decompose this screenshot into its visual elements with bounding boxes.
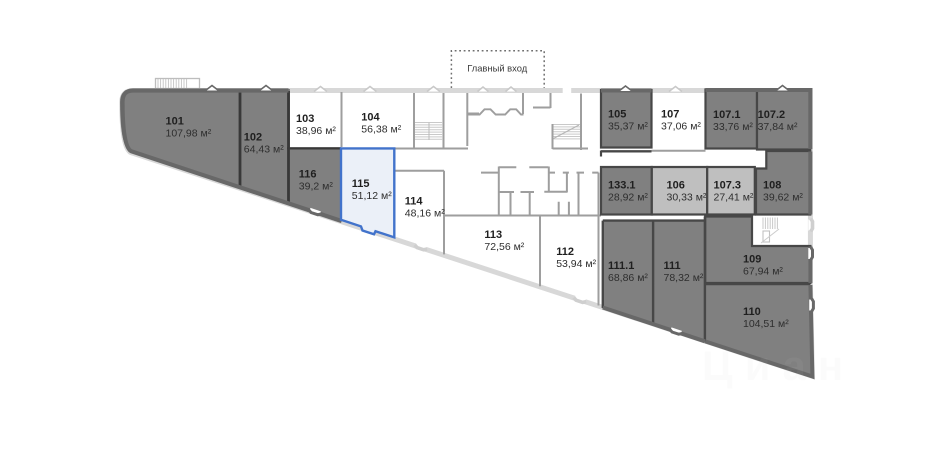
svg-text:116: 116 [299, 168, 317, 180]
svg-text:64,43 м²: 64,43 м² [244, 144, 284, 156]
svg-text:104,51 м²: 104,51 м² [743, 318, 789, 330]
svg-text:106: 106 [667, 179, 685, 191]
svg-text:104: 104 [361, 112, 380, 124]
svg-text:107,98 м²: 107,98 м² [166, 128, 212, 140]
svg-text:72,56 м²: 72,56 м² [484, 241, 524, 253]
svg-text:107.2: 107.2 [758, 109, 786, 121]
svg-text:108: 108 [763, 179, 781, 191]
svg-text:115: 115 [352, 178, 370, 190]
svg-text:112: 112 [556, 246, 574, 258]
svg-text:30,33 м²: 30,33 м² [667, 191, 707, 203]
svg-text:114: 114 [405, 196, 424, 208]
svg-text:53,94 м²: 53,94 м² [556, 258, 596, 270]
svg-text:67,94 м²: 67,94 м² [743, 266, 783, 278]
svg-text:39,2 м²: 39,2 м² [299, 180, 334, 192]
svg-text:110: 110 [743, 306, 761, 318]
svg-text:Циан: Циан [702, 342, 855, 389]
svg-text:33,76 м²: 33,76 м² [713, 121, 753, 133]
svg-text:37,06 м²: 37,06 м² [661, 121, 701, 133]
svg-text:101: 101 [166, 116, 184, 128]
svg-text:105: 105 [608, 109, 626, 121]
svg-text:27,41 м²: 27,41 м² [714, 191, 754, 203]
svg-text:111.1: 111.1 [608, 260, 634, 272]
svg-text:109: 109 [743, 254, 761, 266]
svg-text:111: 111 [664, 260, 681, 272]
svg-text:133.1: 133.1 [608, 179, 636, 191]
svg-text:78,32 м²: 78,32 м² [664, 272, 704, 284]
svg-text:102: 102 [244, 132, 262, 144]
svg-text:37,84 м²: 37,84 м² [758, 121, 798, 133]
svg-text:107: 107 [661, 109, 679, 121]
svg-text:Главный вход: Главный вход [467, 63, 528, 74]
svg-text:103: 103 [296, 113, 314, 125]
svg-text:35,37 м²: 35,37 м² [608, 121, 648, 133]
svg-text:28,92 м²: 28,92 м² [608, 191, 648, 203]
svg-text:48,16 м²: 48,16 м² [405, 208, 445, 220]
svg-text:56,38 м²: 56,38 м² [361, 124, 401, 136]
svg-text:113: 113 [484, 229, 502, 241]
svg-text:68,86 м²: 68,86 м² [608, 272, 648, 284]
svg-text:107.1: 107.1 [713, 109, 741, 121]
svg-text:51,12 м²: 51,12 м² [352, 190, 392, 202]
svg-text:38,96 м²: 38,96 м² [296, 125, 336, 137]
svg-text:39,62 м²: 39,62 м² [763, 191, 803, 203]
svg-text:107.3: 107.3 [714, 179, 742, 191]
